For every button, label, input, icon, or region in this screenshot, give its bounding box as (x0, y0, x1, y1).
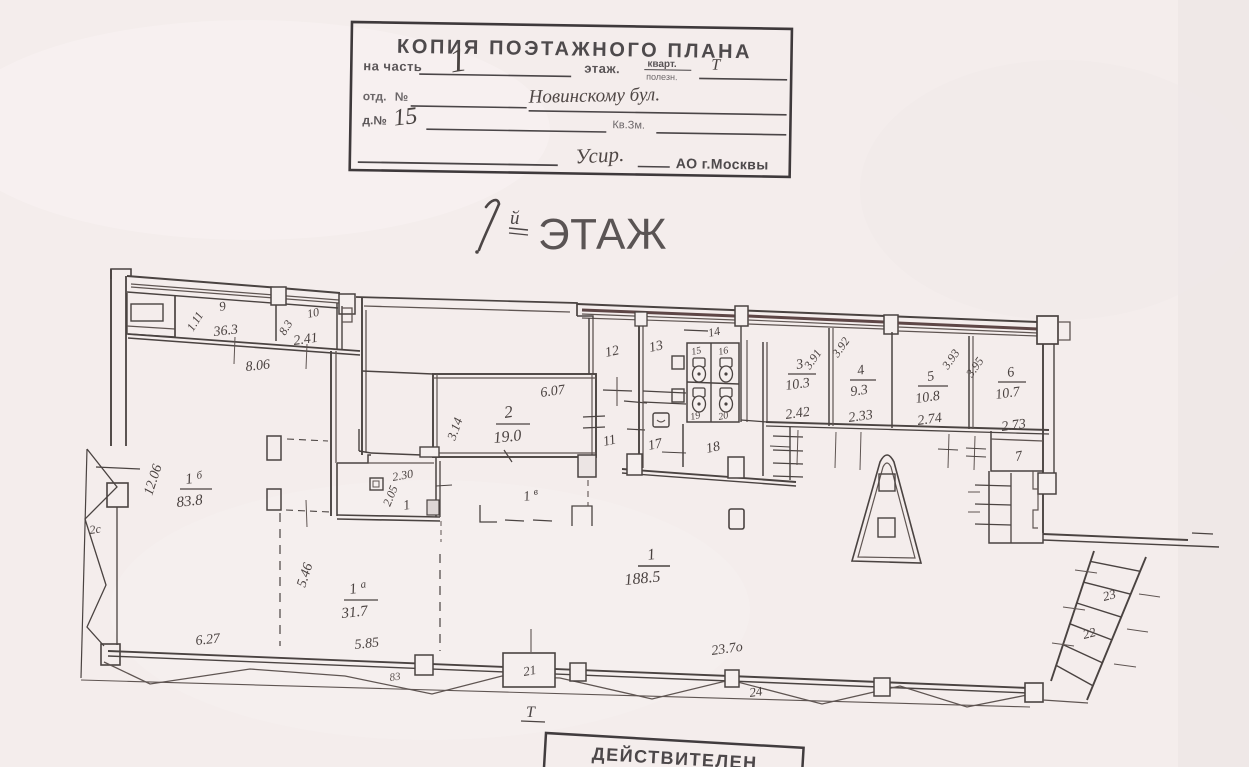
svg-text:5.85: 5.85 (354, 635, 380, 652)
svg-text:ЭТАЖ: ЭТАЖ (538, 210, 667, 259)
svg-text:21: 21 (522, 662, 537, 679)
svg-text:Усир.: Усир. (575, 142, 625, 169)
svg-text:31.7: 31.7 (340, 603, 370, 622)
svg-text:этаж.: этаж. (584, 61, 620, 77)
svg-text:83: 83 (389, 670, 402, 683)
svg-text:Новинскому бул.: Новинскому бул. (527, 84, 660, 108)
svg-text:д.№: д.№ (362, 113, 387, 127)
svg-text:кварт.: кварт. (647, 59, 677, 70)
svg-text:№: № (395, 90, 409, 104)
svg-text:Кв.Зм.: Кв.Зм. (612, 119, 645, 132)
svg-text:8.06: 8.06 (245, 357, 271, 374)
svg-text:полезн.: полезн. (646, 72, 677, 82)
svg-text:АО г.Москвы: АО г.Москвы (676, 155, 769, 172)
svg-text:Т: Т (711, 57, 721, 74)
svg-text:15: 15 (392, 103, 419, 132)
svg-text:19.0: 19.0 (493, 427, 523, 447)
svg-text:Т: Т (526, 704, 536, 721)
svg-text:24: 24 (748, 683, 763, 700)
svg-text:83.8: 83.8 (176, 492, 204, 511)
svg-text:9.3: 9.3 (849, 383, 868, 400)
svg-text:6.27: 6.27 (195, 631, 222, 649)
svg-text:на часть: на часть (363, 58, 422, 74)
svg-text:й: й (510, 208, 520, 229)
svg-text:отд.: отд. (363, 89, 387, 103)
